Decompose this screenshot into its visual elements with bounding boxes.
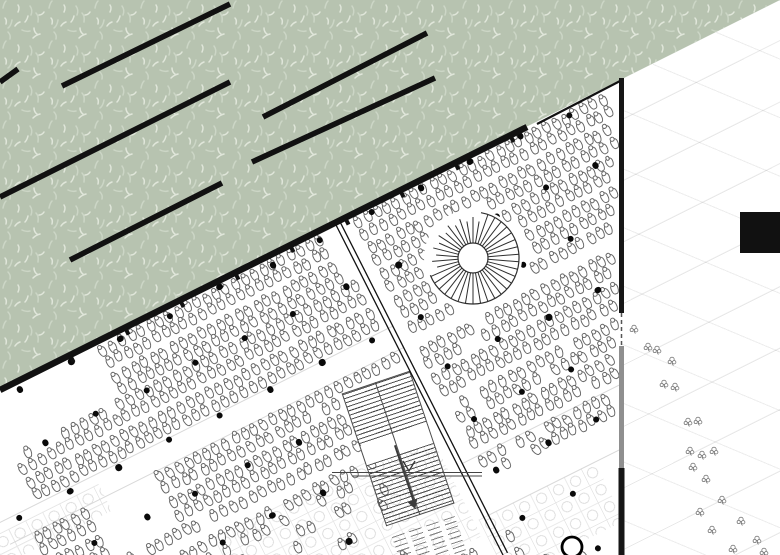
seated-person-icon — [321, 404, 331, 416]
seated-person-icon — [486, 451, 498, 464]
roof-beam — [0, 69, 18, 82]
seated-person-icon — [64, 437, 75, 450]
seated-person-icon — [590, 397, 601, 410]
seated-person-icon — [562, 390, 573, 402]
seated-person-icon — [585, 233, 597, 246]
seated-person-icon — [575, 121, 586, 134]
seated-person-icon — [356, 294, 368, 307]
column-dot — [66, 487, 75, 496]
seated-person-icon — [205, 367, 216, 380]
seated-person-icon — [184, 505, 195, 517]
seated-person-icon — [93, 425, 104, 438]
seated-person-icon — [329, 308, 340, 321]
seated-person-icon — [191, 296, 202, 309]
seated-person-icon — [302, 412, 312, 424]
roof-beam — [70, 183, 222, 260]
seated-person-icon — [302, 304, 313, 317]
seated-person-icon — [598, 142, 610, 155]
seated-person-icon — [553, 195, 564, 208]
column-dot — [41, 438, 50, 447]
seated-person-icon — [204, 478, 215, 491]
seated-person-icon — [322, 455, 332, 467]
seated-person-icon — [108, 435, 120, 448]
seated-person-icon — [371, 253, 383, 266]
seated-person-icon — [368, 223, 379, 235]
seated-person-icon — [418, 298, 430, 311]
seated-person-icon — [512, 347, 523, 359]
seated-person-icon — [462, 176, 473, 189]
seated-person-icon — [570, 205, 581, 218]
seated-person-icon — [112, 349, 123, 362]
roof-beam — [0, 82, 230, 197]
seated-person-icon — [123, 347, 134, 360]
seated-person-icon — [517, 215, 528, 228]
seated-person-icon — [228, 325, 240, 338]
seated-person-icon — [441, 368, 452, 381]
seated-person-icon — [240, 368, 251, 381]
seated-person-icon — [202, 494, 214, 507]
seated-person-icon — [603, 105, 615, 118]
seated-person-icon — [55, 442, 66, 454]
seated-person-icon — [553, 311, 565, 324]
seated-person-icon — [576, 550, 589, 555]
column-dot — [16, 385, 25, 394]
seated-person-icon — [116, 382, 128, 395]
seated-person-icon — [544, 352, 555, 365]
seated-person-icon — [38, 544, 48, 555]
seated-person-icon — [549, 328, 560, 340]
seated-person-icon — [422, 357, 434, 370]
seated-person-icon — [336, 301, 347, 314]
seated-person-icon — [570, 318, 580, 330]
seated-person-icon — [548, 384, 558, 396]
seated-person-icon — [567, 424, 577, 436]
seated-person-icon — [371, 364, 381, 376]
seated-person-icon — [231, 432, 241, 444]
seated-person-icon — [423, 215, 435, 228]
seated-person-icon — [163, 359, 174, 371]
seated-person-icon — [332, 338, 343, 351]
seated-person-icon — [545, 202, 557, 215]
seated-person-icon — [466, 369, 476, 381]
seated-person-icon — [484, 312, 495, 324]
seated-person-icon — [546, 133, 558, 146]
seated-person-icon — [17, 463, 29, 476]
seated-person-icon — [527, 304, 538, 317]
seated-person-icon — [130, 405, 141, 417]
seated-person-icon — [346, 296, 357, 309]
seated-person-icon — [86, 520, 97, 533]
seated-person-icon — [468, 437, 479, 450]
seated-person-icon — [605, 336, 616, 349]
seated-person-icon — [559, 274, 570, 286]
seated-person-icon — [290, 325, 302, 338]
seated-person-icon — [486, 198, 497, 211]
seated-person-icon — [517, 414, 527, 426]
seated-person-icon — [568, 223, 579, 236]
seated-person-icon — [591, 376, 601, 388]
seated-person-icon — [599, 323, 611, 336]
seated-person-icon — [174, 510, 186, 523]
column-dot — [114, 463, 123, 472]
seated-person-icon — [517, 309, 529, 322]
seated-person-icon — [221, 486, 231, 498]
roof-beam — [263, 33, 427, 117]
seated-person-icon — [203, 386, 215, 399]
seated-person-icon — [159, 481, 170, 494]
seated-person-icon — [305, 288, 316, 301]
seated-person-icon — [216, 453, 227, 466]
seated-person-icon — [501, 209, 513, 222]
seated-person-icon — [605, 253, 617, 266]
seated-person-icon — [349, 280, 360, 292]
seated-person-icon — [514, 436, 525, 449]
seated-person-icon — [175, 402, 186, 415]
seated-person-icon — [323, 343, 334, 355]
seated-person-icon — [124, 441, 135, 453]
seated-person-icon — [358, 229, 370, 242]
seated-person-icon — [150, 330, 162, 343]
seated-person-icon — [444, 304, 456, 317]
seated-person-icon — [276, 457, 287, 470]
seated-person-icon — [563, 286, 575, 299]
seated-person-icon — [561, 210, 572, 223]
seated-person-icon — [485, 397, 495, 409]
seated-person-icon — [244, 284, 256, 297]
seated-person-icon — [22, 446, 33, 458]
seated-person-icon — [555, 292, 567, 305]
seated-person-icon — [380, 357, 391, 370]
seated-person-icon — [171, 418, 182, 430]
seated-person-icon — [186, 378, 198, 391]
seated-person-icon — [395, 227, 407, 240]
seated-person-icon — [219, 330, 230, 342]
seated-person-icon — [389, 351, 401, 364]
seated-person-icon — [370, 320, 380, 332]
seated-person-icon — [609, 319, 619, 331]
seated-person-icon — [192, 499, 204, 512]
seated-person-icon — [378, 219, 389, 232]
seated-person-icon — [267, 413, 278, 426]
roof-beam — [252, 78, 435, 162]
seated-person-icon — [487, 381, 497, 393]
seated-person-icon — [318, 310, 329, 322]
seated-person-icon — [594, 360, 606, 373]
seated-person-icon — [604, 354, 616, 367]
seated-person-icon — [438, 384, 450, 397]
seated-person-icon — [245, 441, 257, 454]
seated-person-icon — [249, 470, 260, 483]
seated-person-icon — [345, 318, 356, 330]
seated-person-icon — [434, 309, 446, 322]
seated-person-icon — [140, 401, 151, 413]
seated-person-icon — [554, 346, 564, 358]
seated-person-icon — [480, 329, 491, 342]
seated-person-icon — [573, 408, 583, 420]
seated-person-icon — [549, 279, 561, 292]
seated-person-icon — [582, 182, 593, 195]
seated-person-icon — [534, 405, 544, 417]
seated-person-icon — [494, 192, 505, 205]
seated-person-icon — [188, 547, 197, 555]
seated-person-icon — [170, 477, 181, 490]
seated-person-icon — [97, 456, 108, 469]
seated-person-icon — [217, 346, 228, 359]
seated-person-icon — [607, 300, 619, 313]
column-dot — [492, 466, 501, 475]
seated-person-icon — [548, 251, 560, 264]
seated-person-icon — [609, 138, 620, 151]
seated-person-icon — [518, 149, 529, 162]
seated-person-icon — [571, 386, 582, 399]
seated-person-icon — [239, 477, 251, 490]
seated-person-icon — [600, 124, 611, 137]
column-dot — [143, 513, 152, 522]
seated-person-icon — [406, 203, 417, 216]
column-dot — [266, 385, 275, 394]
seated-person-icon — [256, 485, 268, 498]
seated-person-icon — [414, 198, 426, 211]
seated-person-icon — [606, 405, 617, 417]
seated-person-icon — [406, 254, 418, 267]
seated-person-icon — [285, 474, 295, 486]
seated-person-icon — [475, 363, 486, 375]
seated-person-icon — [75, 524, 87, 537]
roof-beam — [62, 4, 230, 86]
seated-person-icon — [451, 344, 462, 357]
seated-person-icon — [83, 429, 94, 442]
seated-person-icon — [577, 266, 589, 279]
seated-person-icon — [500, 457, 512, 470]
seated-person-icon — [417, 248, 429, 261]
column-dot — [519, 260, 528, 269]
seated-person-icon — [297, 340, 309, 353]
seated-person-icon — [529, 193, 541, 206]
seated-person-icon — [352, 216, 363, 229]
seated-person-icon — [315, 331, 326, 343]
column-dot — [215, 411, 224, 420]
seated-person-icon — [581, 297, 593, 310]
seated-person-icon — [235, 445, 246, 458]
seated-person-icon — [141, 338, 152, 350]
seated-person-icon — [540, 189, 551, 202]
seated-person-icon — [37, 453, 49, 466]
seated-person-icon — [266, 480, 277, 493]
seated-person-icon — [608, 186, 620, 199]
seated-person-icon — [526, 325, 537, 337]
seated-person-icon — [216, 298, 227, 311]
seated-person-icon — [102, 419, 113, 431]
seated-person-icon — [399, 306, 410, 318]
seated-person-icon — [419, 232, 431, 245]
seated-person-icon — [432, 209, 444, 222]
ramp-hatch — [392, 516, 469, 555]
seated-person-icon — [163, 534, 173, 546]
seated-person-icon — [549, 233, 560, 246]
seated-person-icon — [197, 309, 209, 322]
seated-person-icon — [560, 324, 571, 337]
seated-person-icon — [545, 152, 556, 165]
seated-person-icon — [257, 418, 269, 431]
seated-person-icon — [280, 266, 292, 279]
column-dot — [492, 213, 501, 222]
seated-person-icon — [571, 301, 582, 314]
seated-person-icon — [384, 280, 396, 293]
seated-person-icon — [279, 329, 291, 342]
seated-person-icon — [484, 359, 495, 371]
seated-person-icon — [66, 530, 76, 542]
seated-person-icon — [306, 443, 316, 455]
seated-person-icon — [247, 315, 259, 328]
seated-person-icon — [330, 399, 341, 412]
seated-person-icon — [314, 391, 325, 403]
seated-person-icon — [196, 372, 208, 385]
seated-person-icon — [531, 373, 541, 385]
seated-person-icon — [426, 292, 437, 305]
seated-person-icon — [479, 432, 489, 444]
seated-person-icon — [99, 547, 111, 555]
seated-person-icon — [529, 289, 541, 302]
seated-person-icon — [496, 444, 507, 457]
seated-person-icon — [604, 156, 615, 169]
seated-person-icon — [598, 304, 609, 317]
seated-person-icon — [107, 451, 118, 464]
seated-person-icon — [208, 509, 219, 521]
seated-person-icon — [487, 426, 499, 439]
seated-person-icon — [218, 504, 229, 517]
seated-person-icon — [407, 321, 418, 334]
column-dot — [567, 365, 576, 374]
seated-person-icon — [549, 364, 561, 377]
seated-person-icon — [63, 548, 75, 555]
seated-person-icon — [187, 313, 198, 325]
seated-person-icon — [172, 354, 183, 367]
seated-person-icon — [455, 410, 467, 423]
seated-person-icon — [27, 458, 38, 471]
seated-person-icon — [425, 196, 436, 209]
seated-person-icon — [581, 402, 591, 414]
seated-person-icon — [199, 405, 210, 418]
column-dot — [593, 544, 602, 553]
seated-person-icon — [248, 381, 259, 394]
seated-person-icon — [524, 431, 536, 444]
column-dot — [67, 357, 76, 366]
seated-person-icon — [521, 342, 532, 354]
seated-person-icon — [254, 279, 265, 292]
seated-person-icon — [381, 248, 393, 261]
seated-person-icon — [196, 326, 208, 339]
seated-person-icon — [523, 228, 535, 241]
seated-person-icon — [154, 364, 166, 377]
seated-person-icon — [225, 449, 236, 462]
seated-person-icon — [472, 170, 483, 183]
seated-person-icon — [461, 196, 473, 209]
seated-person-icon — [224, 293, 236, 306]
seated-person-icon — [379, 267, 391, 280]
seated-person-icon — [250, 363, 262, 376]
seated-person-icon — [215, 364, 227, 377]
seated-person-icon — [243, 348, 254, 361]
seated-person-icon — [333, 381, 344, 394]
seated-person-icon — [294, 244, 306, 257]
seated-person-icon — [402, 290, 414, 303]
site-plan-canvas — [0, 0, 780, 555]
seated-person-icon — [214, 383, 225, 395]
seated-person-icon — [171, 528, 183, 541]
seated-person-icon — [396, 207, 408, 220]
seated-person-icon — [275, 253, 286, 266]
seated-person-icon — [237, 497, 248, 510]
